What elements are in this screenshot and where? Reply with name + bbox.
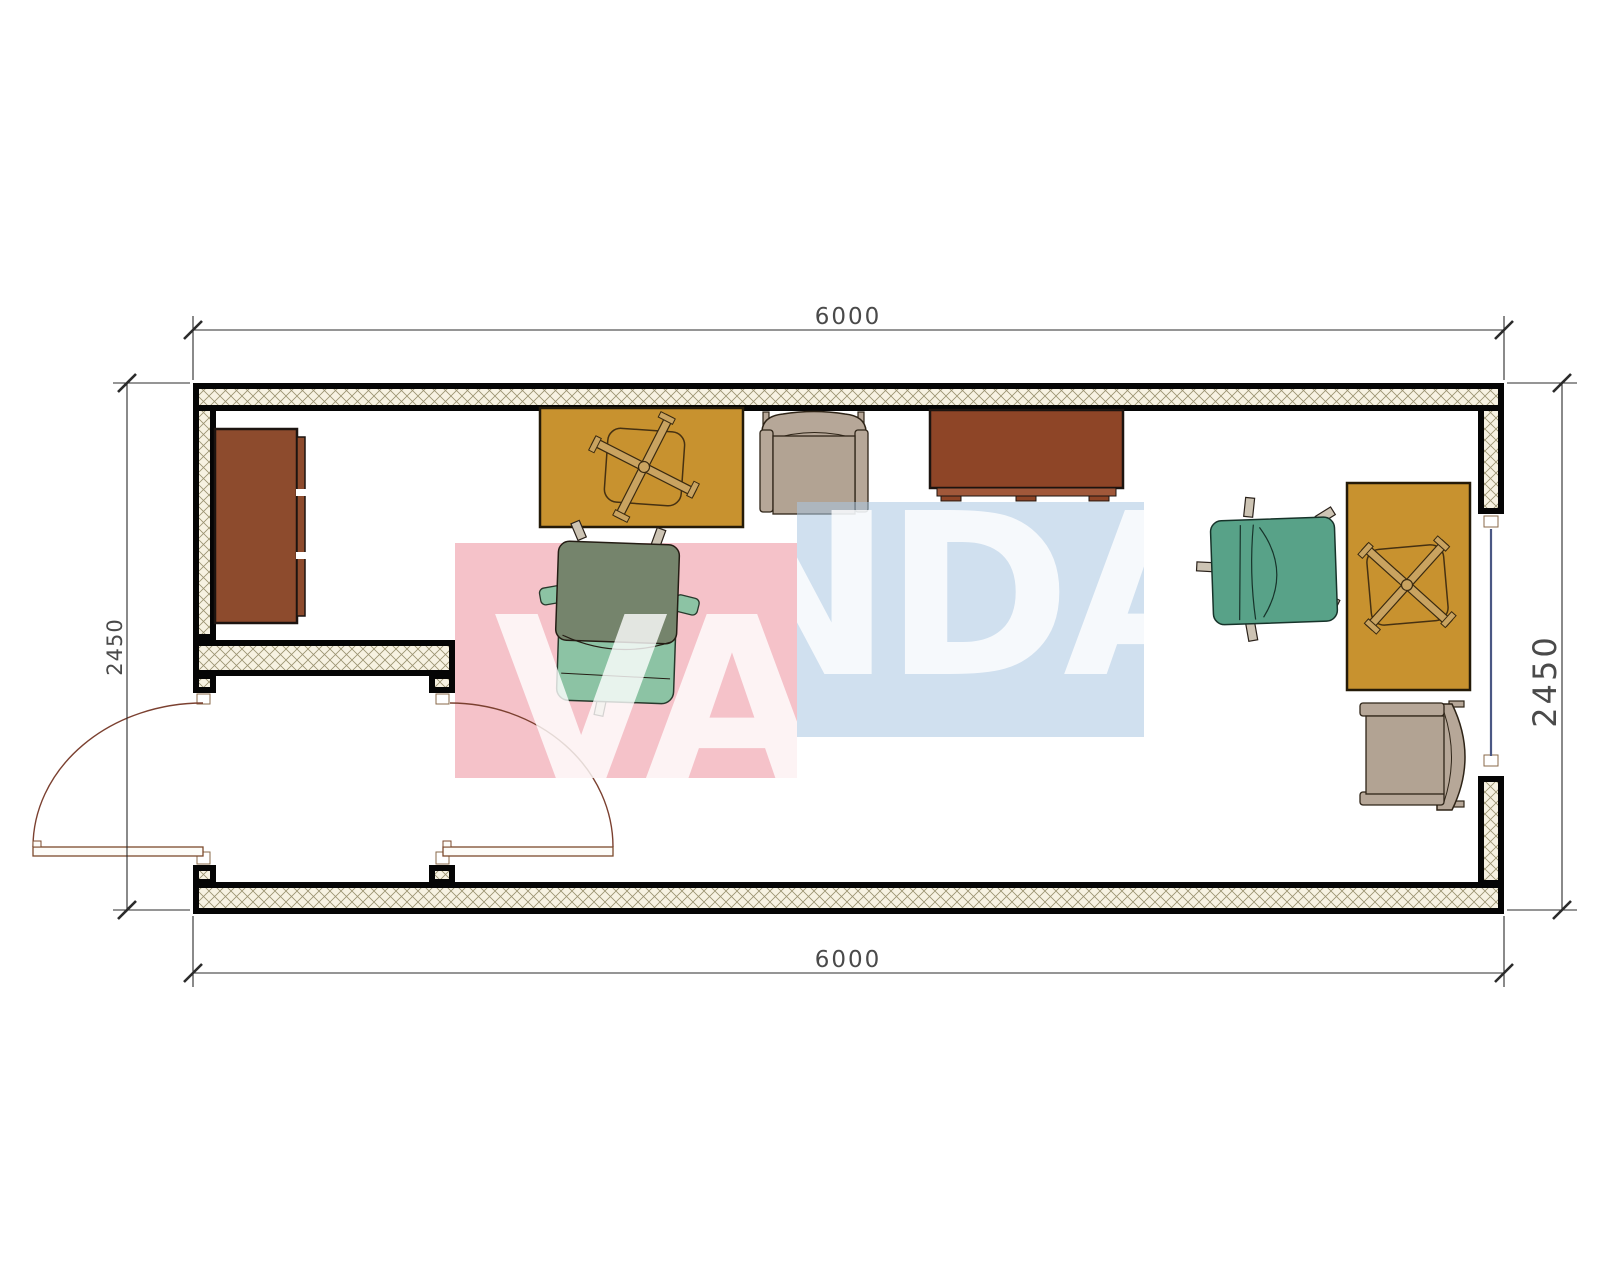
armchair-seat — [1366, 716, 1444, 794]
wall-right-upper — [1481, 408, 1501, 511]
cabinet-handle-gap — [296, 552, 306, 559]
floor-plan-drawing: 6000 6000 2450 2450 VANDA VANDA — [0, 0, 1600, 1280]
armchair-arm — [1360, 703, 1444, 716]
desk-right — [1327, 483, 1488, 690]
dimension-label-bottom: 6000 — [815, 947, 882, 973]
door-leaf — [33, 847, 203, 856]
sideboard-base-strip — [937, 488, 1116, 496]
armchair-top — [760, 412, 868, 515]
wall-stub-left — [196, 868, 213, 882]
sideboard-body — [930, 410, 1123, 488]
sideboard-foot — [1089, 496, 1109, 501]
armchair-right — [1360, 701, 1465, 810]
door-leaf-end — [443, 841, 451, 847]
window-jamb — [1484, 755, 1498, 766]
door-jamb — [436, 694, 449, 704]
cabinet-handle-gap — [296, 489, 306, 496]
floor-plan-canvas: 6000 6000 2450 2450 VANDA VANDA — [0, 0, 1600, 1280]
partition-left-leg — [196, 676, 213, 690]
wall-left — [196, 408, 213, 637]
cabinet — [215, 429, 306, 623]
chair-body — [1210, 517, 1338, 625]
dimension-label-left: 2450 — [103, 618, 127, 675]
cabinet-body — [215, 429, 297, 623]
armchair-arm — [760, 430, 773, 512]
wall-stub-right — [432, 868, 452, 882]
partition-wall — [196, 643, 452, 673]
desk-left — [540, 390, 743, 543]
wall-top — [196, 386, 1501, 408]
sideboard — [930, 410, 1123, 501]
sideboard-foot — [941, 496, 961, 501]
wall-bottom — [196, 885, 1501, 911]
dimension-label-top: 6000 — [815, 304, 882, 330]
wall-right-lower — [1481, 779, 1501, 883]
door-leaf-end — [33, 841, 41, 847]
partition-right-leg — [432, 676, 452, 690]
sideboard-foot — [1016, 496, 1036, 501]
dimension-label-right: 2450 — [1526, 634, 1564, 727]
window-jamb — [1484, 516, 1498, 527]
armchair-arm — [855, 430, 868, 512]
cabinet-side-panel — [297, 437, 305, 616]
chair-caster — [1244, 497, 1255, 517]
door-leaf — [443, 847, 613, 856]
